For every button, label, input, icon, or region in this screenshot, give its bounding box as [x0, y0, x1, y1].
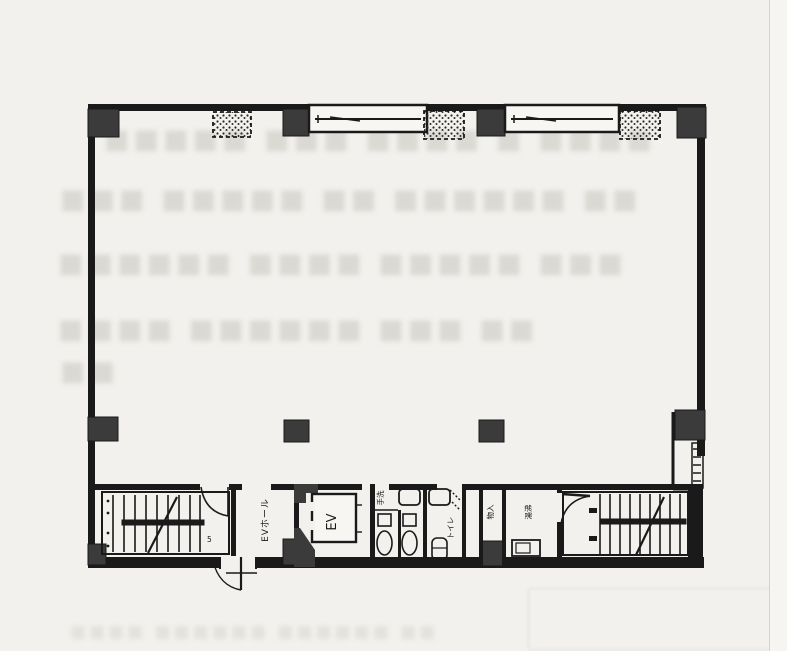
elevator-hall-label: EVホール [260, 498, 271, 542]
service-band-top-wall [92, 484, 703, 490]
storage-label: 物入 [485, 504, 495, 519]
left-stair-mark: 5 [207, 535, 212, 544]
hand-wash-label: 手洗 [375, 490, 385, 505]
kitchenette-sink [512, 540, 540, 556]
left-staircase [102, 492, 229, 554]
top-window-left [309, 105, 427, 132]
top-window-right [505, 105, 619, 132]
kitchenette-label: 湯沸 [523, 504, 533, 519]
right-stair-door [561, 494, 590, 524]
elevator-label: EV [325, 513, 340, 530]
floor-plan-drawing: 5 EVホール EV [0, 0, 787, 651]
toilet-label: トイレ [446, 517, 455, 540]
rear-exit-door [213, 556, 257, 590]
scanned-floor-plan-page: ■■■■■ ■■■ ■■■■ ■ ■■■■ ■■■ ■■■■■ ■■ ■■■■■… [0, 0, 787, 651]
structural-columns [88, 107, 706, 566]
right-staircase [563, 492, 688, 555]
outer-walls [88, 104, 706, 568]
